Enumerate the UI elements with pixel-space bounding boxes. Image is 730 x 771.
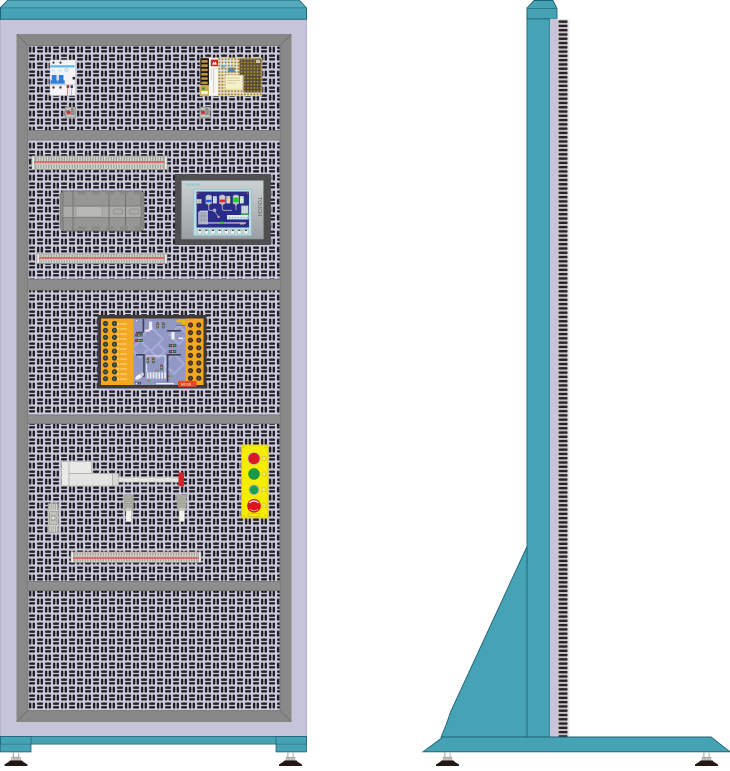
svg-text:TOUCH: TOUCH (256, 197, 262, 216)
svg-text:MCGS: MCGS (181, 382, 192, 386)
svg-text:SIEMENS: SIEMENS (186, 183, 200, 187)
